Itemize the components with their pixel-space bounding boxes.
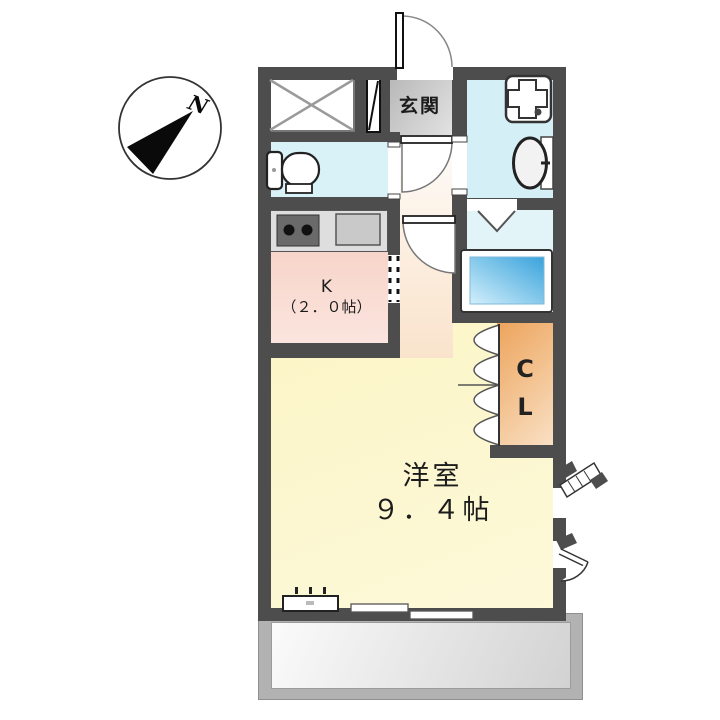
hallway-floor [398,132,453,358]
wall-hall-right [452,80,467,312]
toilet-doorway [388,145,400,195]
wall-top-right [453,67,566,80]
wall-right [553,67,566,621]
floor-plan: N 玄関 K （２．０帖） 洋室 ９．４帖 C L [0,0,720,720]
wall-top-left [258,67,397,80]
bathroom-floor [467,203,553,318]
closet-label: C L [508,348,542,428]
main-room-label: 洋室 ９．４帖 [335,458,530,530]
kitchen-counter [265,210,388,252]
wall-toilet-bottom [258,197,397,210]
bath-door-track [467,199,517,211]
window-gap-upper [553,488,566,518]
storage-x-box [268,78,355,132]
window-gap-lower [553,541,566,568]
washroom-doorway [452,140,467,190]
wall-bottom [258,608,566,621]
shoe-cabinet [366,78,381,133]
entrance-doorway [397,67,453,80]
balcony-floor [271,622,571,689]
compass-icon [119,77,221,179]
entrance-label: 玄関 [388,95,452,119]
wall-bath-bottom [452,312,566,323]
kitchen-label: K （２．０帖） [265,274,388,320]
toilet-room-floor [265,142,395,200]
entrance-door [396,13,452,68]
wall-kitchen-bottom [258,343,400,358]
kitchen-opening [388,255,400,303]
compass-north-label: N [179,88,216,123]
washroom-floor [467,80,553,203]
wall-closet-bottom [490,445,566,458]
